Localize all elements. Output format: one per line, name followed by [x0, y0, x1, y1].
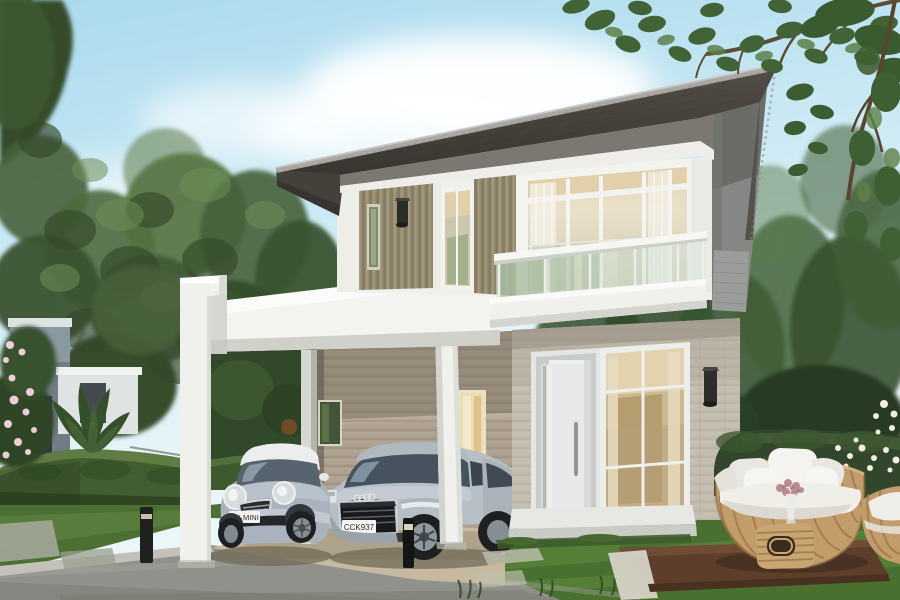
svg-text:CCK937: CCK937 — [344, 523, 375, 532]
